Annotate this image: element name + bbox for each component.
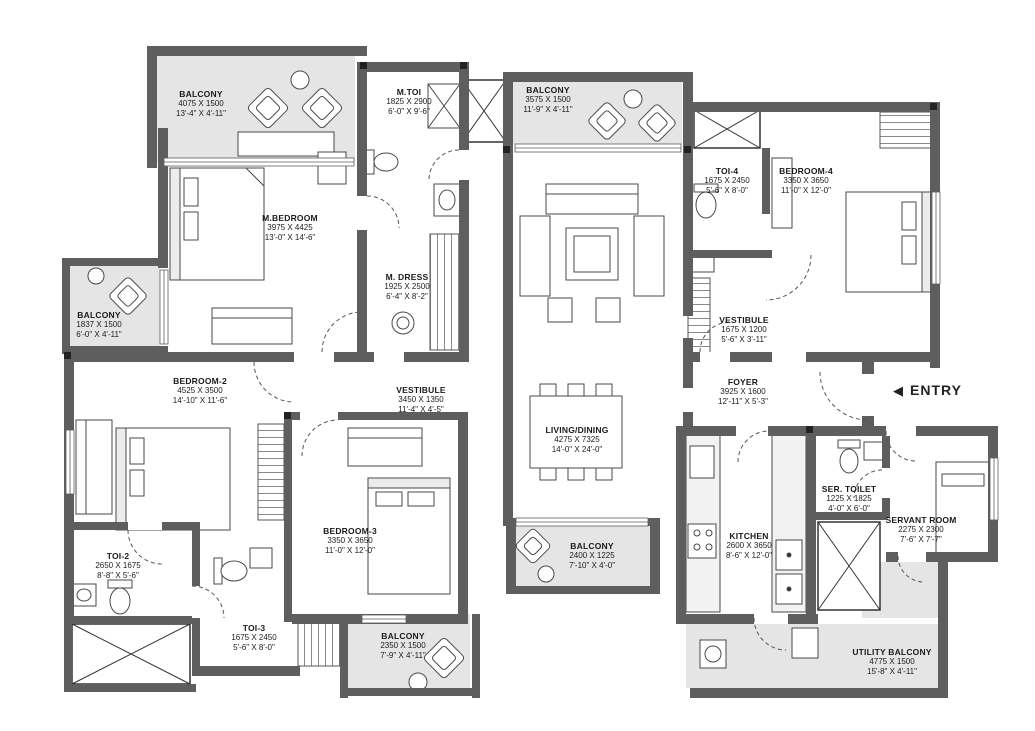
room-label-utility-balcony: UTILITY BALCONY 4775 X 1500 15'-8" X 4'-…	[852, 647, 931, 677]
room-label-toi-4: TOI-4 1675 X 2450 5'-6" X 8'-0"	[704, 166, 749, 196]
room-label-vestibule-right: VESTIBULE 1675 X 1200 5'-6" X 3'-11"	[719, 315, 769, 345]
room-label-balcony-top-left: BALCONY 4075 X 1500 13'-4" X 4'-11"	[176, 89, 226, 119]
entry-marker: ◀ ENTRY	[893, 382, 962, 398]
room-label-toi-2: TOI-2 2650 X 1675 8'-8" X 5'-6"	[95, 551, 140, 581]
room-label-living-dining: LIVING/DINING 4275 X 7325 14'-0" X 24'-0…	[545, 425, 608, 455]
floor-plan-drawing	[0, 0, 1035, 731]
room-label-bedroom-3: BEDROOM-3 3350 X 3650 11'-0" X 12'-0"	[323, 526, 377, 556]
room-label-servant-room: SERVANT ROOM 2275 X 2300 7'-6" X 7'-7"	[885, 515, 956, 545]
room-label-balcony-left: BALCONY 1837 X 1500 6'-0" X 4'-11"	[76, 310, 122, 340]
room-label-balcony-bottom: BALCONY 2350 X 1500 7'-9" X 4'-11"	[380, 631, 426, 661]
entry-arrow-icon: ◀	[893, 384, 903, 397]
room-label-balcony-mid: BALCONY 2400 X 1225 7'-10" X 4'-0"	[569, 541, 615, 571]
room-label-m-dress: M. DRESS 1925 X 2500 6'-4" X 8'-2"	[384, 272, 429, 302]
room-label-bedroom-2: BEDROOM-2 4525 X 3500 14'-10" X 11'-6"	[173, 376, 227, 406]
entry-label: ENTRY	[910, 382, 962, 398]
room-label-balcony-top: BALCONY 3575 X 1500 11'-9" X 4'-11"	[523, 85, 572, 115]
room-label-m-bedroom: M.BEDROOM 3975 X 4425 13'-0" X 14'-6"	[262, 213, 318, 243]
room-label-foyer: FOYER 3925 X 1600 12'-11" X 5'-3"	[718, 377, 768, 407]
floor-plan-canvas: BALCONY 4075 X 1500 13'-4" X 4'-11" M.TO…	[0, 0, 1035, 731]
room-label-toi-3: TOI-3 1675 X 2450 5'-6" X 8'-0"	[231, 623, 276, 653]
room-label-ser-toilet: SER. TOILET 1225 X 1825 4'-0" X 6'-0"	[822, 484, 876, 514]
room-label-bedroom-4: BEDROOM-4 3350 X 3650 11'-0" X 12'-0"	[779, 166, 833, 196]
room-label-m-toi: M.TOI 1825 X 2900 6'-0" X 9'-6"	[386, 87, 431, 117]
room-label-vestibule-mid: VESTIBULE 3450 X 1350 11'-4" X 4'-5"	[396, 385, 446, 415]
room-label-kitchen: KITCHEN 2600 X 3650 8'-6" X 12'-0"	[726, 531, 772, 561]
